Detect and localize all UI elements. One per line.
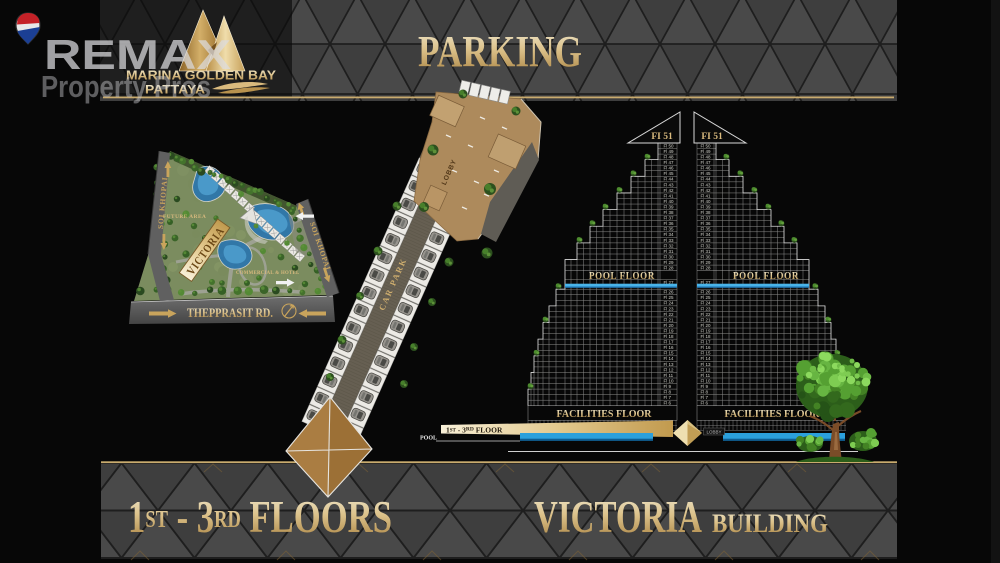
svg-text:Fl 49: Fl 49 [664, 149, 675, 154]
svg-text:Fl 50: Fl 50 [701, 143, 712, 148]
svg-text:Fl 48: Fl 48 [701, 155, 712, 160]
svg-text:Fl 44: Fl 44 [664, 177, 675, 182]
svg-text:Fl 25: Fl 25 [664, 295, 675, 300]
svg-text:Fl 32: Fl 32 [664, 243, 675, 248]
svg-text:Fl 25: Fl 25 [701, 295, 712, 300]
svg-text:Fl 8: Fl 8 [664, 390, 672, 395]
svg-text:Fl 42: Fl 42 [701, 188, 712, 193]
svg-text:Fl 21: Fl 21 [664, 317, 675, 322]
svg-text:COMMERCIAL & HOTEL: COMMERCIAL & HOTEL [236, 271, 300, 276]
svg-text:Fl 33: Fl 33 [664, 238, 675, 243]
svg-text:Fl 50: Fl 50 [664, 143, 675, 148]
svg-text:Fl 26: Fl 26 [664, 290, 675, 295]
svg-text:Fl 11: Fl 11 [664, 373, 674, 378]
svg-text:Fl 49: Fl 49 [701, 149, 712, 154]
svg-text:1ST - 3RD FLOORS: 1ST - 3RD FLOORS [128, 492, 392, 542]
svg-text:POOL FLOOR: POOL FLOOR [589, 271, 655, 282]
svg-text:Fl 14: Fl 14 [664, 356, 675, 361]
svg-text:Fl 22: Fl 22 [664, 312, 675, 317]
svg-text:Fl 19: Fl 19 [664, 328, 675, 333]
svg-text:Fl 13: Fl 13 [664, 362, 675, 367]
svg-text:LOBBY: LOBBY [706, 430, 721, 435]
svg-text:Fl 37: Fl 37 [664, 216, 675, 221]
svg-text:Fl 39: Fl 39 [664, 204, 675, 209]
svg-text:FACILITIES FLOOR: FACILITIES FLOOR [557, 409, 653, 420]
svg-text:Fl 42: Fl 42 [664, 188, 675, 193]
svg-text:Fl 35: Fl 35 [701, 227, 712, 232]
svg-text:Fl 18: Fl 18 [701, 334, 712, 339]
svg-text:Fl 6: Fl 6 [664, 401, 672, 406]
svg-text:Fl 35: Fl 35 [664, 227, 675, 232]
svg-text:Fl 32: Fl 32 [701, 243, 712, 248]
svg-text:Fl 34: Fl 34 [664, 232, 675, 237]
svg-text:VICTORIA: VICTORIA [534, 492, 702, 542]
svg-text:Fl 45: Fl 45 [664, 171, 675, 176]
svg-text:Fl 44: Fl 44 [701, 177, 712, 182]
svg-text:Fl 23: Fl 23 [664, 306, 675, 311]
svg-text:Fl 18: Fl 18 [664, 334, 675, 339]
svg-text:Fl 29: Fl 29 [701, 260, 712, 265]
svg-text:Property Pros: Property Pros [41, 69, 211, 104]
svg-text:Fl 45: Fl 45 [701, 171, 712, 176]
svg-text:Fl 30: Fl 30 [664, 254, 675, 259]
svg-text:Fl 9: Fl 9 [701, 384, 709, 389]
svg-text:Fl 15: Fl 15 [664, 351, 675, 356]
svg-text:Fl 6: Fl 6 [701, 401, 709, 406]
svg-text:Fl 23: Fl 23 [701, 306, 712, 311]
svg-text:Fl 19: Fl 19 [701, 328, 712, 333]
svg-text:Fl 33: Fl 33 [701, 238, 712, 243]
svg-text:Fl 38: Fl 38 [664, 210, 675, 215]
svg-text:Fl 16: Fl 16 [701, 345, 712, 350]
svg-text:Fl 12: Fl 12 [664, 367, 675, 372]
svg-text:Fl 20: Fl 20 [701, 323, 712, 328]
svg-text:Fl 41: Fl 41 [701, 193, 712, 198]
svg-text:Fl 8: Fl 8 [701, 390, 709, 395]
svg-text:Fl 7: Fl 7 [701, 395, 709, 400]
svg-text:Fl 7: Fl 7 [664, 395, 672, 400]
svg-text:PARKING: PARKING [418, 27, 582, 76]
svg-text:Fl 48: Fl 48 [664, 155, 675, 160]
svg-text:Fl 16: Fl 16 [664, 345, 675, 350]
svg-text:Fl 29: Fl 29 [664, 260, 675, 265]
svg-text:Fl 15: Fl 15 [701, 351, 712, 356]
svg-text:Fl 47: Fl 47 [701, 160, 712, 165]
svg-text:Fl 31: Fl 31 [664, 249, 675, 254]
svg-text:FI 51: FI 51 [651, 132, 673, 142]
svg-text:Fl 24: Fl 24 [701, 301, 712, 306]
svg-text:Fl 9: Fl 9 [664, 384, 672, 389]
svg-text:POOL FLOOR: POOL FLOOR [733, 271, 799, 282]
svg-text:Fl 28: Fl 28 [664, 266, 675, 271]
svg-text:Fl 24: Fl 24 [664, 301, 675, 306]
svg-text:THEPPRASIT RD.: THEPPRASIT RD. [187, 306, 273, 320]
svg-text:Fl 10: Fl 10 [701, 378, 712, 383]
svg-text:Fl 40: Fl 40 [701, 199, 712, 204]
svg-text:FUTURE AREA: FUTURE AREA [163, 214, 206, 220]
svg-text:Fl 43: Fl 43 [701, 182, 712, 187]
svg-text:Fl 46: Fl 46 [664, 166, 675, 171]
svg-text:Fl 41: Fl 41 [664, 193, 675, 198]
svg-text:Fl 12: Fl 12 [701, 367, 712, 372]
svg-text:BUILDING: BUILDING [712, 509, 828, 538]
svg-text:Fl 11: Fl 11 [701, 373, 711, 378]
svg-text:FACILITIES FLOOR: FACILITIES FLOOR [725, 409, 821, 420]
svg-text:Fl 36: Fl 36 [664, 221, 675, 226]
svg-text:Fl 31: Fl 31 [701, 249, 712, 254]
svg-text:Fl 10: Fl 10 [664, 378, 675, 383]
svg-text:Fl 20: Fl 20 [664, 323, 675, 328]
svg-text:Fl 28: Fl 28 [701, 266, 712, 271]
svg-text:Fl 34: Fl 34 [701, 232, 712, 237]
svg-text:Fl 36: Fl 36 [701, 221, 712, 226]
svg-text:Fl 17: Fl 17 [701, 340, 712, 345]
svg-text:Fl 13: Fl 13 [701, 362, 712, 367]
svg-text:Fl 14: Fl 14 [701, 356, 712, 361]
svg-text:Fl 39: Fl 39 [701, 204, 712, 209]
svg-text:FI 51: FI 51 [701, 132, 723, 142]
svg-text:Fl 26: Fl 26 [701, 290, 712, 295]
svg-text:POOL: POOL [420, 436, 437, 442]
svg-text:Fl 40: Fl 40 [664, 199, 675, 204]
svg-text:Fl 38: Fl 38 [701, 210, 712, 215]
svg-text:Fl 43: Fl 43 [664, 182, 675, 187]
svg-text:Fl 37: Fl 37 [701, 216, 712, 221]
svg-text:Fl 17: Fl 17 [664, 340, 675, 345]
svg-text:Fl 21: Fl 21 [701, 317, 712, 322]
svg-text:Fl 46: Fl 46 [701, 166, 712, 171]
svg-text:Fl 22: Fl 22 [701, 312, 712, 317]
svg-text:Fl 47: Fl 47 [664, 160, 675, 165]
svg-text:Fl 30: Fl 30 [701, 254, 712, 259]
